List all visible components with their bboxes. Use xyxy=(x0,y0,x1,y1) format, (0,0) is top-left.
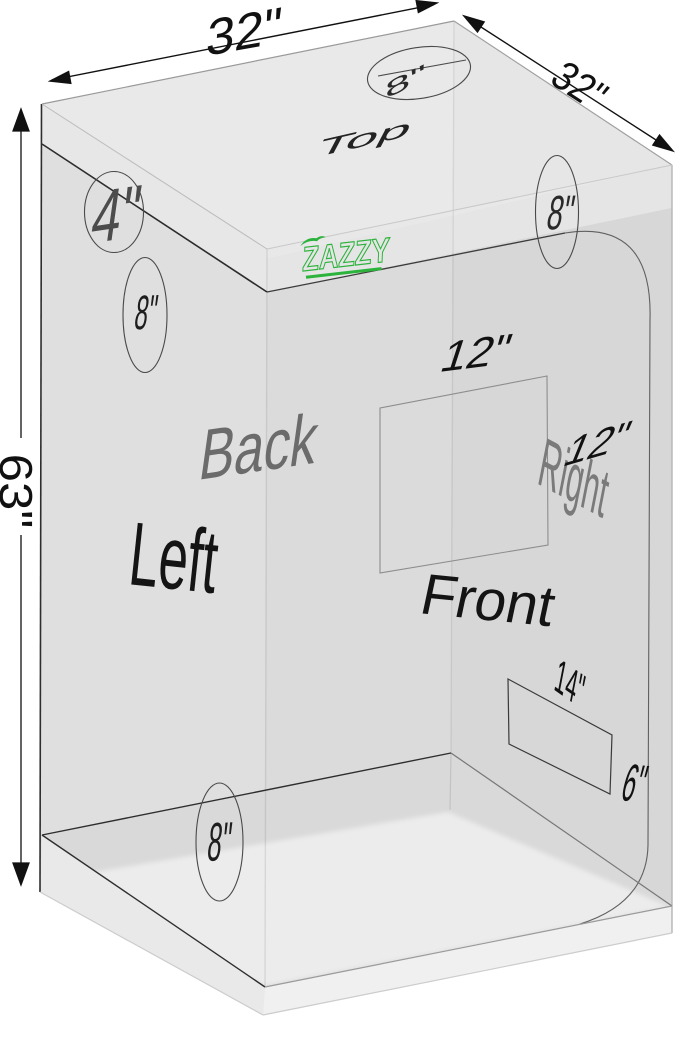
svg-text:63": 63" xyxy=(0,454,41,529)
svg-text:Left: Left xyxy=(125,503,223,613)
svg-text:Front: Front xyxy=(415,563,560,639)
